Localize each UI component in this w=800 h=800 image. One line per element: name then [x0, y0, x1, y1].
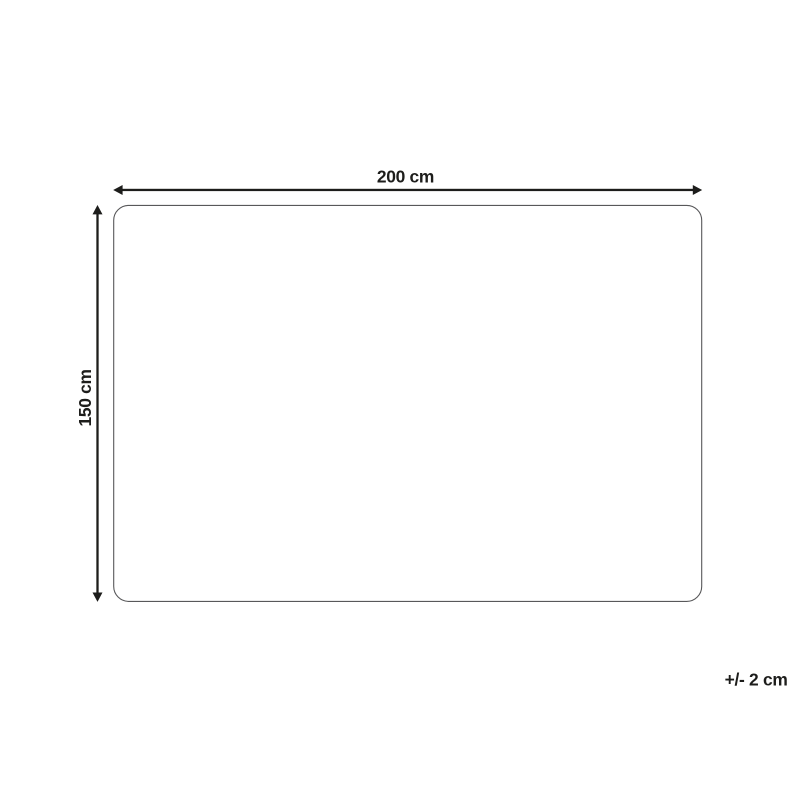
svg-text:+/- 2 cm: +/- 2 cm: [725, 670, 788, 690]
svg-text:200 cm: 200 cm: [377, 166, 434, 186]
svg-text:150 cm: 150 cm: [75, 369, 95, 426]
